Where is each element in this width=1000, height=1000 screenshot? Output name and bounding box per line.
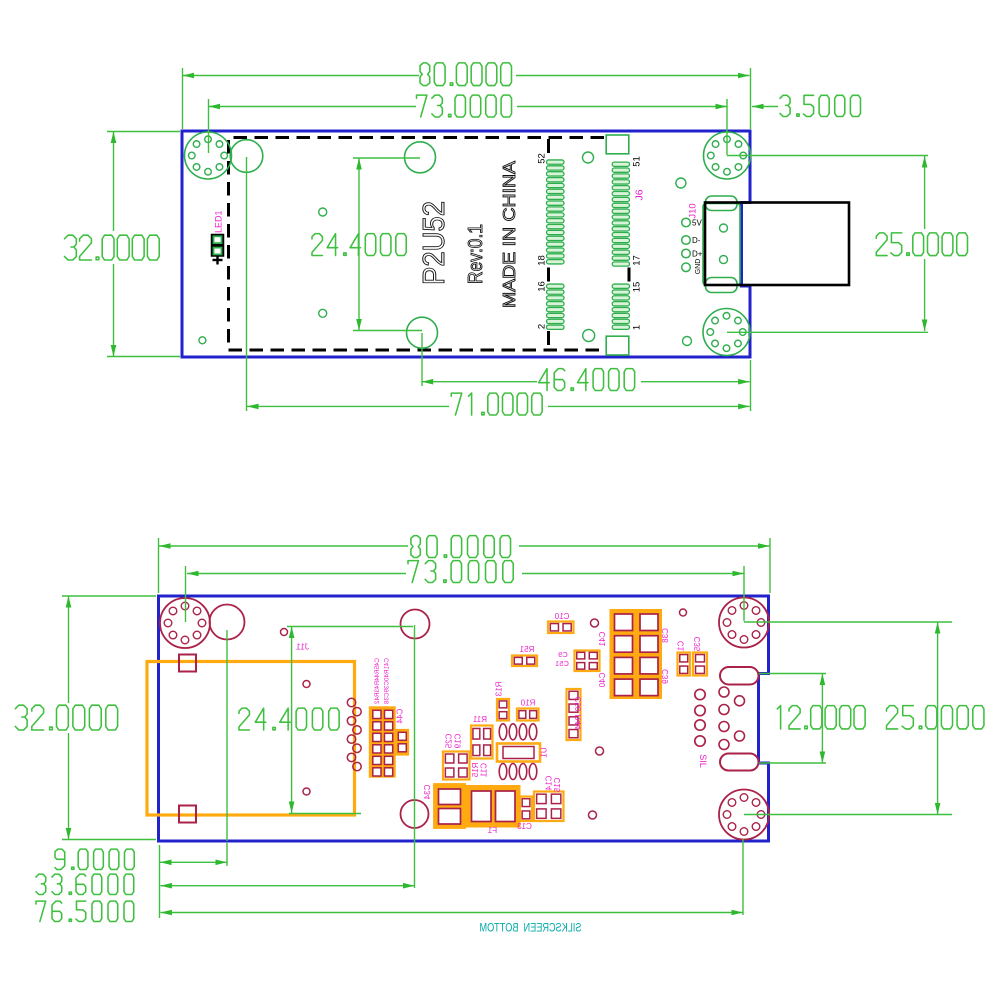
svg-text:C11: C11 [480, 763, 489, 778]
svg-text:2: 2 [537, 324, 548, 329]
svg-text:J6: J6 [634, 189, 646, 200]
svg-text:C45R44R43R42: C45R44R43R42 [374, 658, 381, 704]
svg-text:R13: R13 [495, 682, 504, 697]
svg-text:1: 1 [632, 325, 643, 330]
svg-text:R11: R11 [472, 715, 487, 724]
svg-text:J10: J10 [688, 203, 699, 218]
svg-text:D-: D- [692, 236, 701, 245]
svg-text:C50: C50 [574, 697, 583, 712]
svg-text:15: 15 [632, 282, 643, 293]
svg-text:C9: C9 [558, 650, 568, 659]
svg-text:C25: C25 [445, 734, 454, 749]
svg-text:J11: J11 [296, 642, 309, 652]
svg-text:C15: C15 [553, 778, 562, 793]
svg-text:C39: C39 [661, 669, 670, 684]
svg-text:GND: GND [695, 259, 702, 275]
svg-text:C41: C41 [598, 632, 607, 647]
svg-text:R51: R51 [519, 645, 534, 654]
svg-text:MADE IN CHINA: MADE IN CHINA [499, 161, 519, 308]
svg-text:17: 17 [632, 255, 643, 266]
svg-text:C13: C13 [517, 822, 532, 831]
svg-text:C40: C40 [598, 673, 607, 688]
svg-text:U1: U1 [540, 747, 549, 758]
svg-text:C19: C19 [454, 734, 463, 749]
svg-text:C51: C51 [555, 659, 569, 668]
svg-text:C35: C35 [693, 637, 702, 652]
svg-text:LED1: LED1 [214, 210, 224, 233]
svg-text:P2U52: P2U52 [416, 201, 451, 285]
svg-text:51: 51 [632, 156, 643, 167]
svg-text:C41R40C39C38: C41R40C39C38 [384, 658, 391, 704]
svg-text:C38: C38 [661, 628, 670, 643]
svg-text:C34: C34 [423, 785, 432, 800]
svg-text:SIL: SIL [698, 754, 708, 768]
svg-text:C10: C10 [554, 612, 569, 621]
svg-text:16: 16 [537, 281, 548, 292]
svg-text:R10: R10 [520, 699, 535, 708]
svg-text:C44: C44 [396, 709, 405, 724]
svg-text:Rev:0.1: Rev:0.1 [465, 224, 487, 284]
svg-text:D+: D+ [692, 250, 703, 259]
svg-text:SILKSCREEN BOTTOM: SILKSCREEN BOTTOM [480, 923, 582, 935]
svg-text:C1: C1 [677, 641, 686, 652]
svg-text:5V: 5V [692, 219, 702, 228]
svg-text:R44: R44 [574, 715, 583, 730]
svg-text:52: 52 [537, 153, 548, 164]
svg-text:18: 18 [537, 255, 548, 266]
svg-text:F1: F1 [487, 826, 497, 835]
